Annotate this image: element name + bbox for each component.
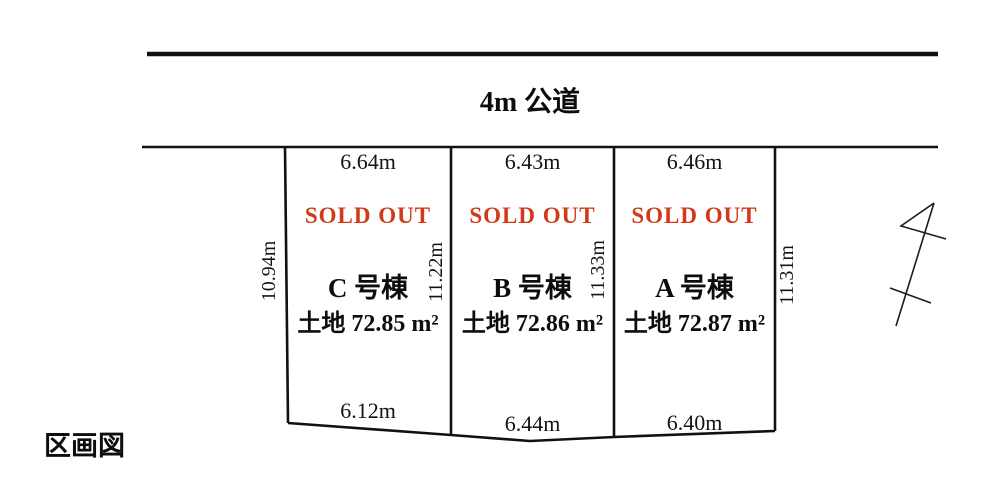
plot-a-bottom-dimension: 6.40m: [614, 410, 775, 436]
right-depth-dimension: 11.31m: [776, 220, 798, 330]
plot-c-top-dimension: 6.64m: [285, 149, 451, 175]
plot-a-name: A 号棟: [614, 266, 775, 305]
plot-c-bottom-dimension: 6.12m: [285, 398, 451, 424]
c-b-depth-dimension: 11.22m: [425, 217, 447, 327]
plot-a-sold-out-status: SOLD OUT: [614, 203, 775, 229]
plot-b-bottom-dimension: 6.44m: [451, 411, 614, 437]
plot-map: 4m 公道 6.64m SOLD OUT C 号棟 土地 72.85 m² 6.…: [0, 0, 1000, 480]
plot-a-top-dimension: 6.46m: [614, 149, 775, 175]
plot-b-top-dimension: 6.43m: [451, 149, 614, 175]
b-a-depth-dimension: 11.33m: [587, 215, 609, 325]
plot-a-land-area: 土地 72.87 m²: [614, 303, 775, 338]
north-arrow-icon: [890, 203, 946, 326]
boundary-lines: [0, 0, 1000, 480]
road-label: 4m 公道: [400, 80, 660, 120]
map-title: 区画図: [44, 424, 125, 463]
left-depth-dimension: 10.94m: [258, 216, 280, 326]
